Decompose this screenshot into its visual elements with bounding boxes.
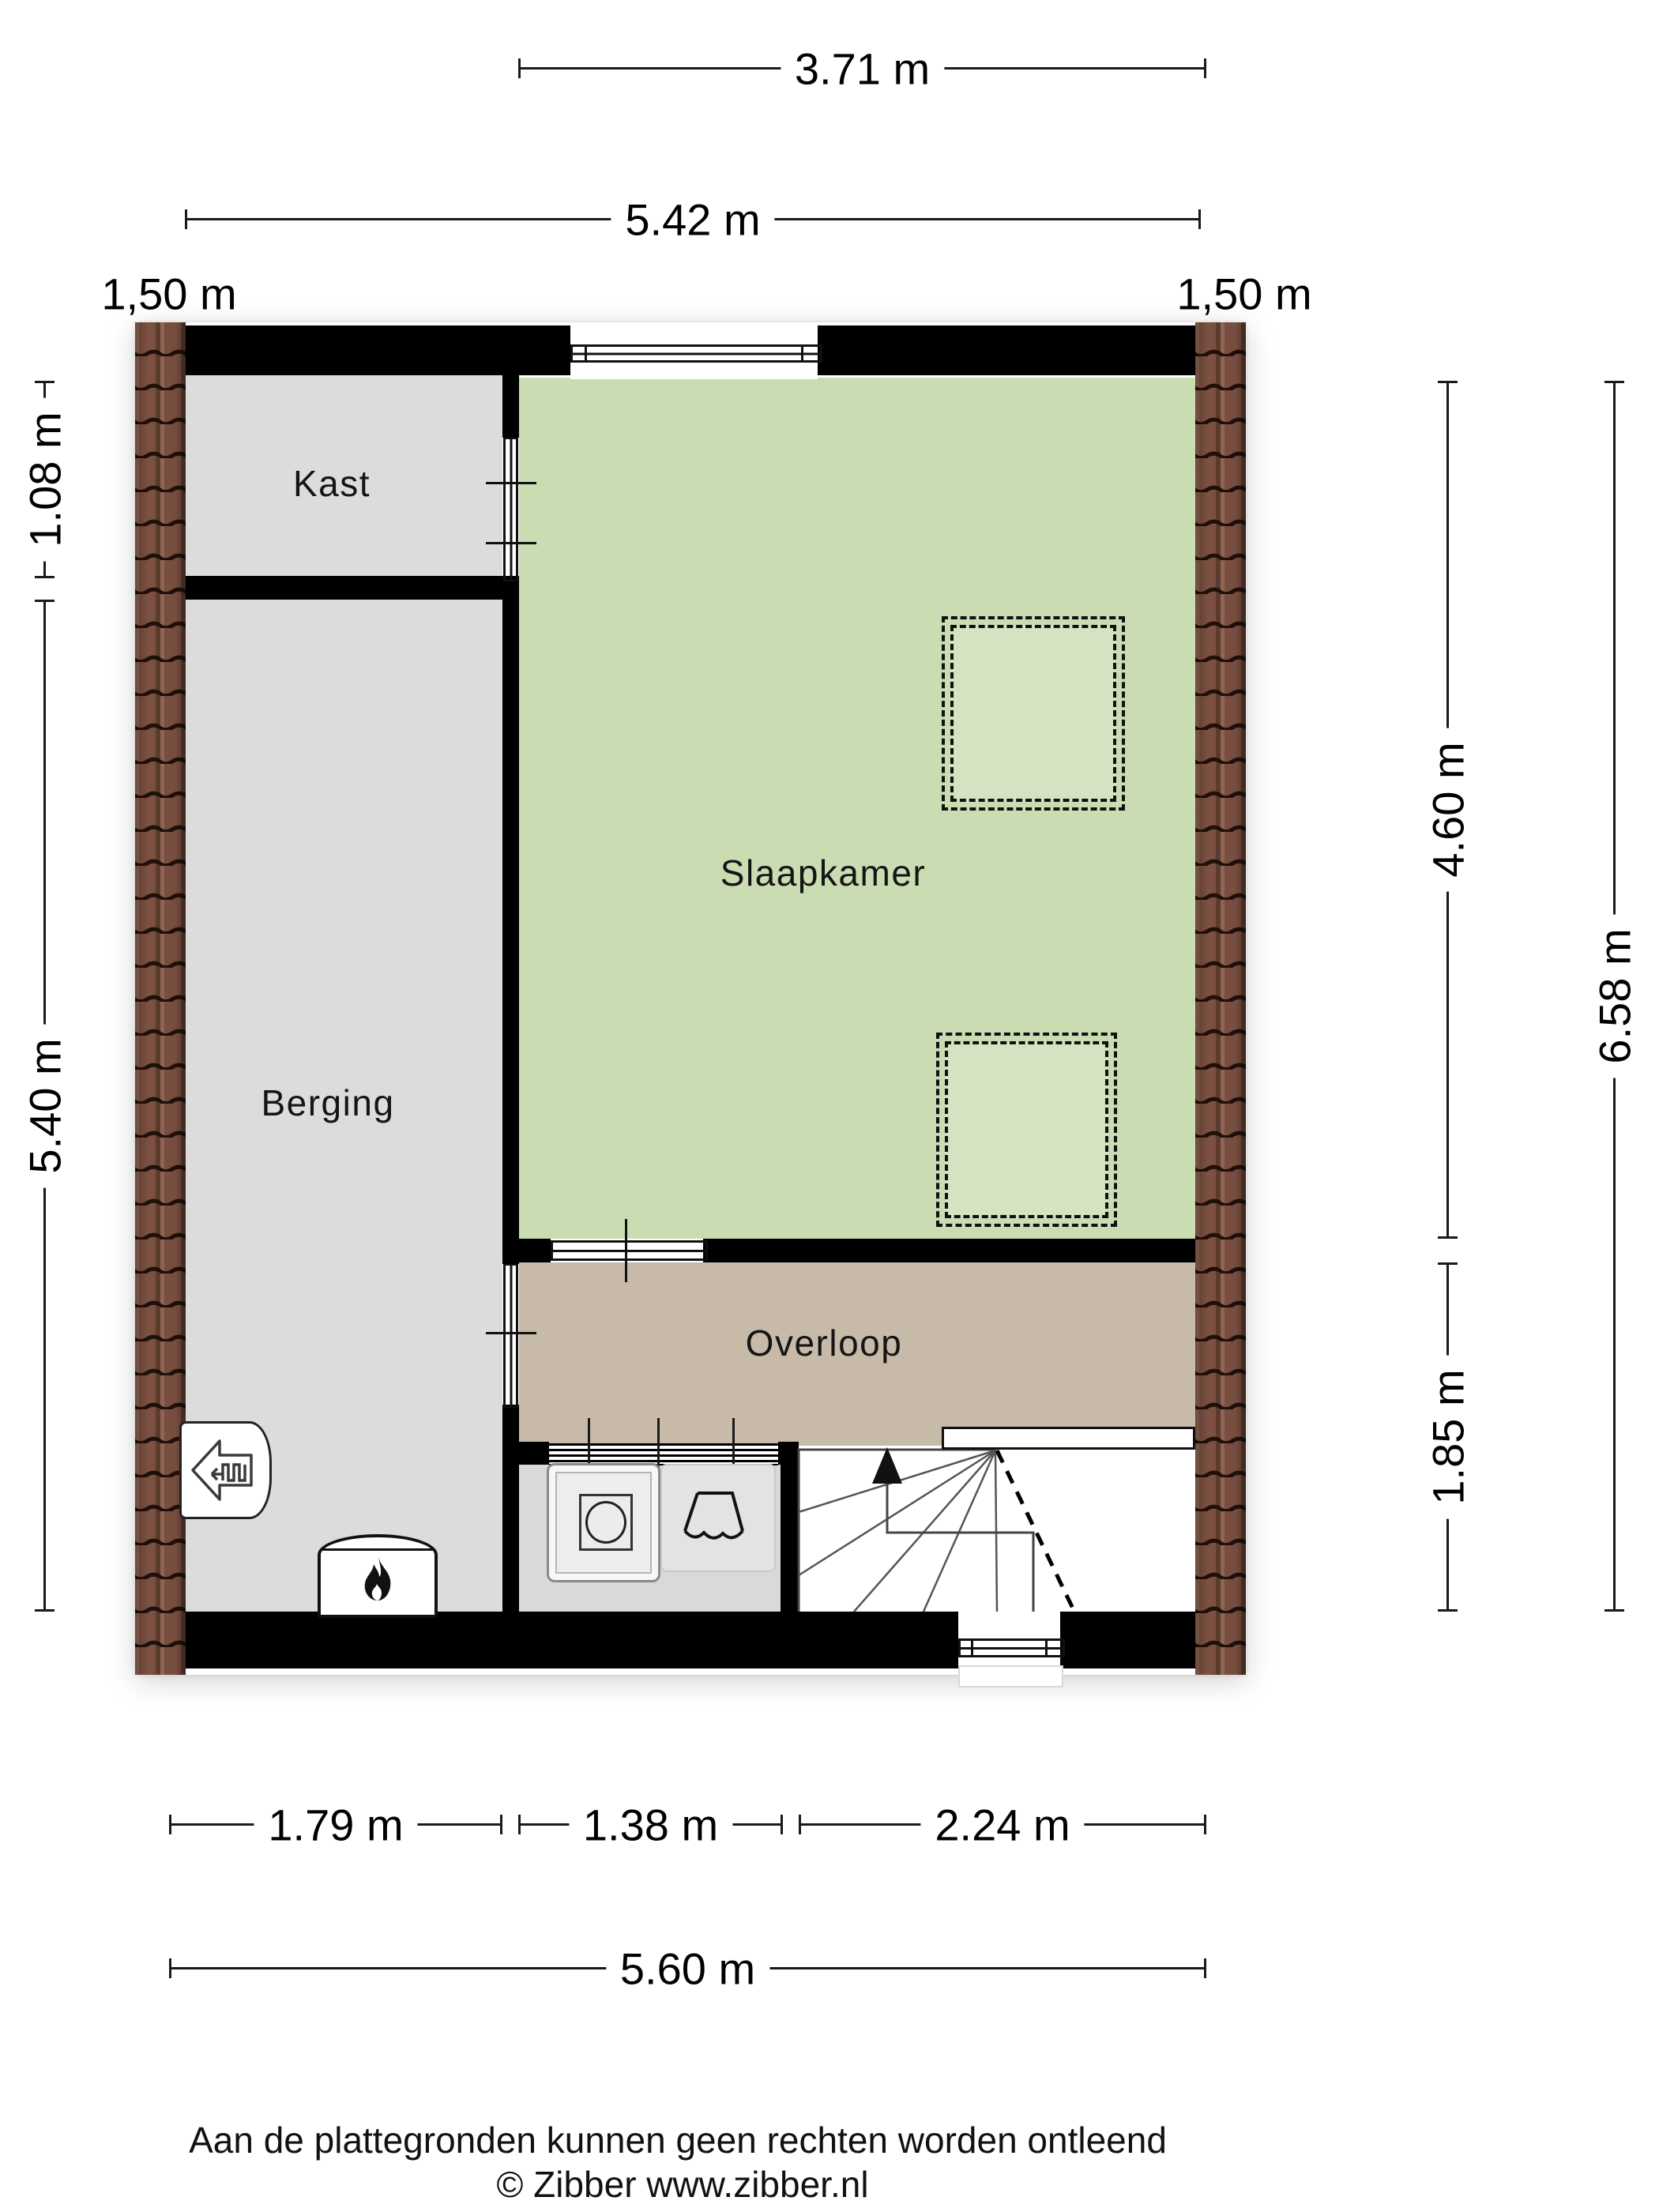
window-bottom-post-left xyxy=(971,1638,973,1657)
heat-pump-icon xyxy=(179,1421,272,1519)
wall-berging-right-lower xyxy=(502,1405,519,1612)
wall-berging-right xyxy=(502,578,519,1264)
wall-kast-right-stub xyxy=(502,375,519,438)
stairs xyxy=(796,1444,1081,1613)
up-arrow-icon xyxy=(872,1447,902,1484)
window-slaapkamer-tick xyxy=(625,1219,627,1282)
dim-right-slaapkamer-label: 4.60 m xyxy=(1423,728,1474,891)
skylight-2 xyxy=(936,1033,1117,1227)
louver-tick-3 xyxy=(732,1418,735,1469)
wall-bottom-left xyxy=(186,1612,958,1668)
skylight-1 xyxy=(942,616,1125,811)
dim-right-total-label: 6.58 m xyxy=(1589,914,1641,1078)
wall-bottom-right xyxy=(1060,1612,1195,1668)
label-kast: Kast xyxy=(293,462,371,505)
label-overloop: Overloop xyxy=(746,1322,903,1364)
dim-roof-right-label: 1,50 m xyxy=(1176,269,1311,320)
louver-tick-2 xyxy=(657,1418,660,1469)
window-berging-tick xyxy=(486,1332,536,1334)
louver-doors xyxy=(549,1443,778,1465)
footer-credit: © Zibber www.zibber.nl xyxy=(496,2163,868,2206)
dim-left-berging-label: 5.40 m xyxy=(20,1024,71,1187)
dim-top-outer-label: 5.42 m xyxy=(611,194,774,246)
dim-bottom-total-label: 5.60 m xyxy=(606,1943,769,1995)
window-kast-tick-1 xyxy=(486,482,536,484)
dim-right-overloop-label: 1.85 m xyxy=(1423,1355,1474,1518)
window-bottom-post-right xyxy=(1045,1638,1048,1657)
dim-left-kast-label: 1.08 m xyxy=(20,397,71,561)
dim-bottom-stairs-label: 2.24 m xyxy=(920,1800,1084,1851)
dim-bottom-laundry-label: 1.38 m xyxy=(569,1800,732,1851)
dim-roof-left-label: 1,50 m xyxy=(101,269,236,320)
window-slaapkamer-overloop xyxy=(551,1240,708,1261)
flame-icon xyxy=(357,1555,398,1604)
label-berging: Berging xyxy=(261,1082,394,1124)
dim-bottom-berging-label: 1.79 m xyxy=(254,1800,417,1851)
window-kast-slaapkamer xyxy=(503,438,518,581)
window-kast-tick-2 xyxy=(486,542,536,544)
wall-slaapkamer-bottom-stub xyxy=(502,1239,551,1262)
wall-top-right xyxy=(818,325,1195,375)
roof-edge-left xyxy=(135,322,186,1675)
footer-disclaimer: Aan de plattegronden kunnen geen rechten… xyxy=(189,2119,1167,2161)
label-slaapkamer: Slaapkamer xyxy=(720,852,926,894)
window-bottom-icon xyxy=(958,1638,1065,1657)
window-top-post-left xyxy=(585,344,587,363)
wall-laundry-top-left xyxy=(502,1442,549,1465)
boiler-icon xyxy=(318,1534,438,1618)
roof-edge-right xyxy=(1195,322,1246,1675)
window-top-post-right xyxy=(801,344,803,363)
wall-slaapkamer-bottom xyxy=(703,1239,1195,1262)
laundry-basket-icon xyxy=(660,1464,776,1572)
window-top-icon xyxy=(570,344,822,363)
wall-top-left xyxy=(186,325,570,375)
stairs-handrail xyxy=(942,1427,1195,1450)
window-bottom-sill xyxy=(958,1665,1063,1687)
dim-top-inner-label: 3.71 m xyxy=(781,43,944,95)
floorplan-page: Kast Berging Slaapkamer Overloop 3.71 m … xyxy=(0,0,1659,2212)
window-berging-overloop xyxy=(503,1264,518,1408)
louver-tick-1 xyxy=(588,1418,590,1469)
skylight-1-inner xyxy=(950,625,1116,802)
washing-machine-icon xyxy=(547,1463,660,1582)
wall-kast-bottom xyxy=(186,576,519,600)
skylight-2-inner xyxy=(945,1041,1108,1218)
